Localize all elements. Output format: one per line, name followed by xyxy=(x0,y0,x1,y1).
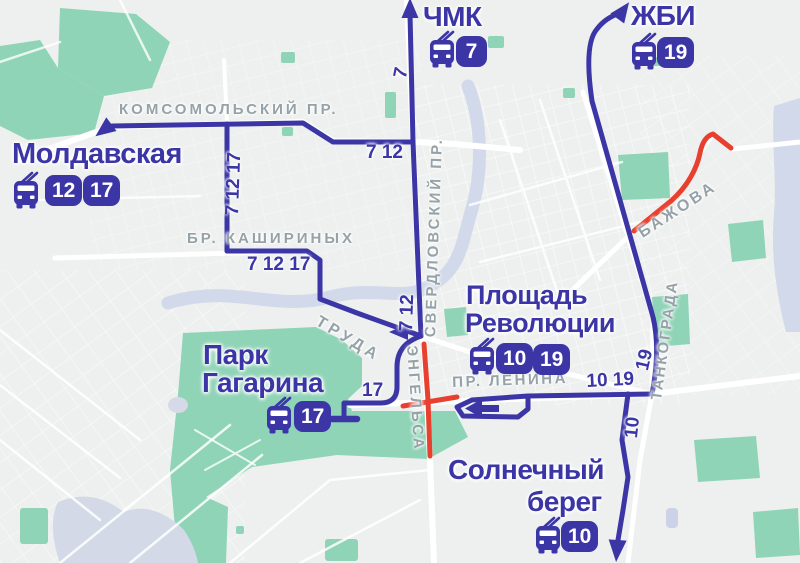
route-label-tankograda-north: 19 xyxy=(633,347,656,372)
route-badge-10: 10 xyxy=(561,521,598,552)
terminal-name-chmk: ЧМК xyxy=(423,3,482,31)
terminal-name-gagarina-line1: Парк xyxy=(203,341,268,369)
route-label-sverdlovsky-mid: 7 12 xyxy=(397,294,417,332)
route-label-lenina: 10 19 xyxy=(586,370,634,391)
route-label-komsomolsky-east: 7 12 xyxy=(366,143,403,162)
terminal-name-gagarina-line2: Гагарина xyxy=(202,369,323,397)
route-label-tankograda-south: 10 xyxy=(622,416,643,439)
terminal-name-zhbi: ЖБИ xyxy=(631,2,695,30)
terminal-name-ploshchad-line1: Площадь xyxy=(466,282,587,309)
route-badge-12: 12 xyxy=(45,175,82,206)
trolleybus-routes-map[interactable]: КОМСОМОЛЬСКИЙ ПР. БР. КАШИРИНЫХ СВЕРДЛОВ… xyxy=(0,0,800,563)
route-badge-7: 7 xyxy=(456,36,487,67)
terminal-name-solnechny-line1: Солнечный xyxy=(448,456,604,484)
terminal-name-ploshchad-line2: Революции xyxy=(465,310,615,337)
trolleybus-icon xyxy=(533,516,563,554)
street-label-kashirinykh: БР. КАШИРИНЫХ xyxy=(187,231,355,246)
route-label-kashirinykh: 7 12 17 xyxy=(247,255,310,274)
trolleybus-icon xyxy=(467,337,497,375)
terminal-name-solnechny-line2: берег xyxy=(527,488,602,516)
street-label-komsomolsky: КОМСОМОЛЬСКИЙ ПР. xyxy=(119,102,339,117)
route-line-lenina xyxy=(528,394,652,396)
route-badge-17: 17 xyxy=(294,401,331,432)
terminal-name-moldavskaya: Молдавская xyxy=(12,140,182,169)
route-label-gagarina-spur: 17 xyxy=(362,381,383,400)
route-badge-10: 10 xyxy=(496,343,533,374)
route-badge-17: 17 xyxy=(83,175,120,206)
route-badge-19: 19 xyxy=(533,344,570,375)
route-label-west-branch: 7 12 17 xyxy=(223,152,244,216)
route-badge-19: 19 xyxy=(657,37,694,68)
trolleybus-icon xyxy=(629,32,659,70)
trolleybus-icon xyxy=(427,30,457,68)
trolleybus-icon xyxy=(264,396,294,434)
trolleybus-icon xyxy=(11,171,41,209)
